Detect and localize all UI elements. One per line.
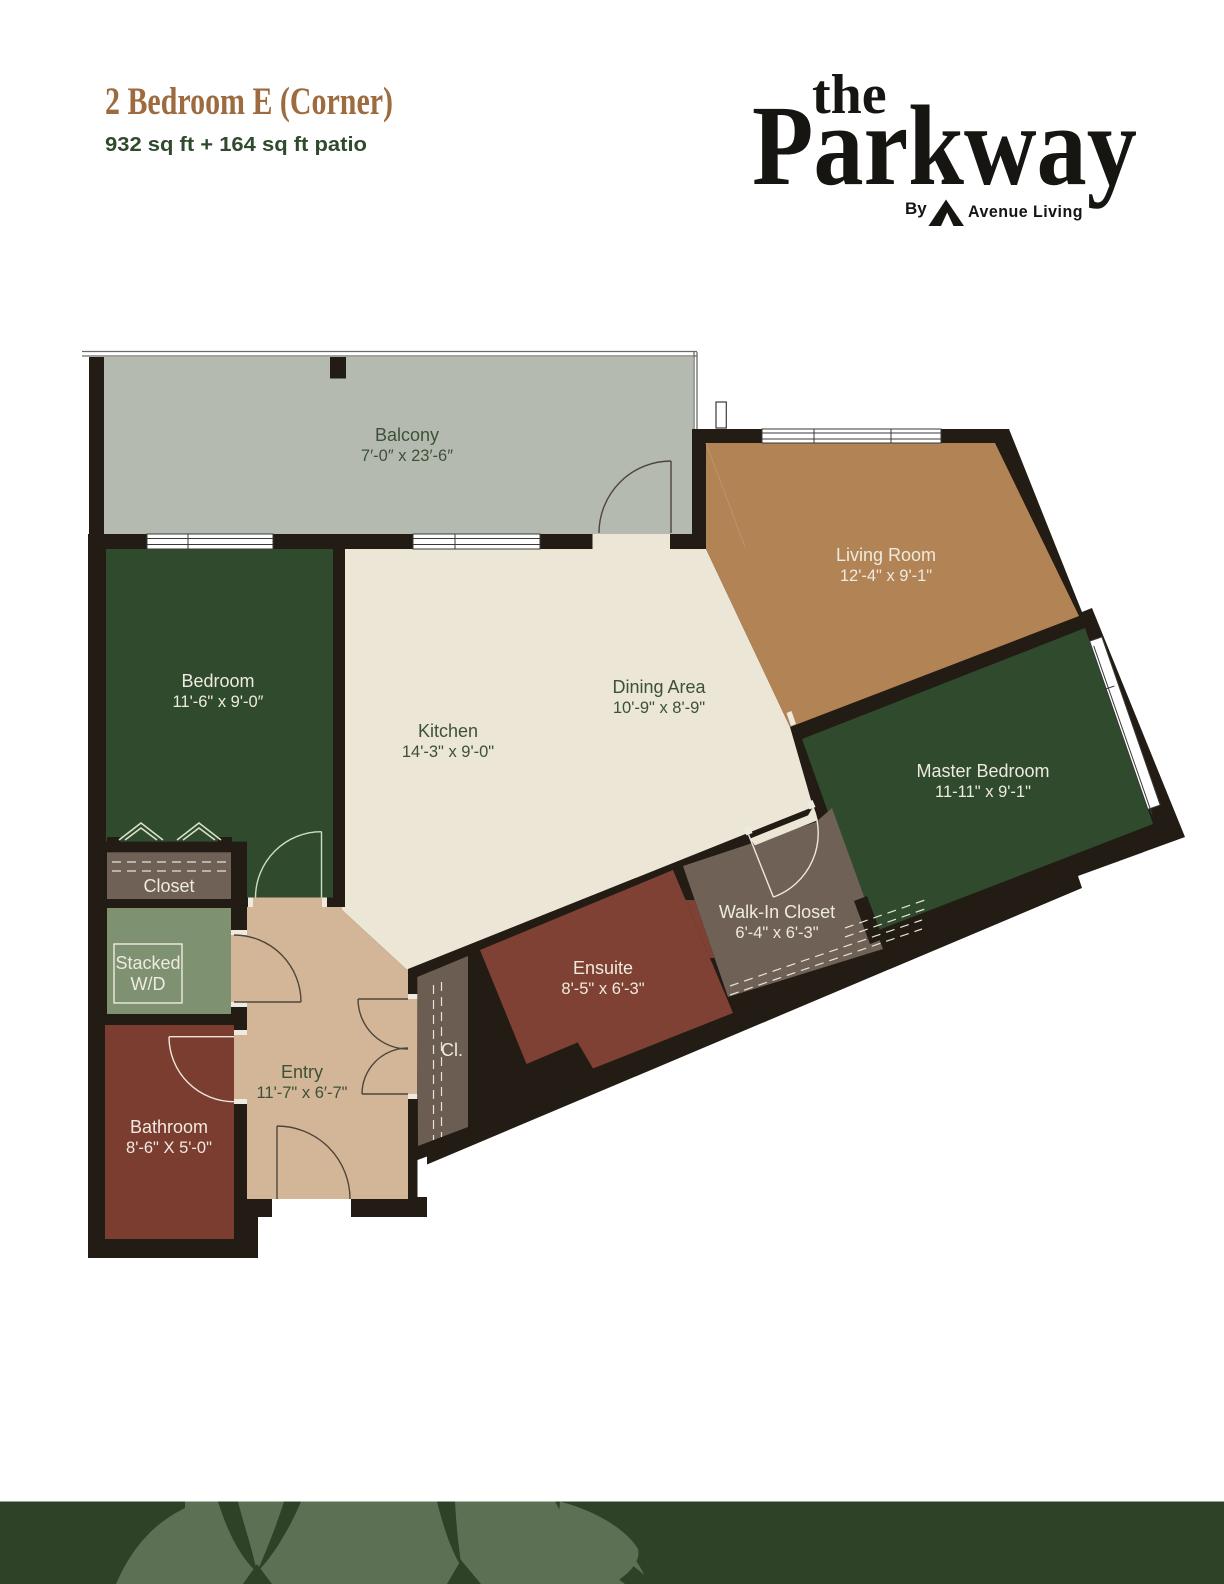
svg-text:2 Bedroom E (Corner): 2 Bedroom E (Corner) <box>105 80 393 123</box>
svg-text:932 sq ft + 164 sq ft patio: 932 sq ft + 164 sq ft patio <box>105 134 367 156</box>
svg-text:Entry: Entry <box>281 1062 323 1082</box>
svg-text:10'-9" x 8'-9": 10'-9" x 8'-9" <box>613 699 705 717</box>
svg-text:11'-7" x 6′-7": 11'-7" x 6′-7" <box>256 1084 347 1102</box>
svg-text:Bathroom: Bathroom <box>130 1117 208 1137</box>
svg-text:Walk-In Closet: Walk-In Closet <box>719 902 835 922</box>
svg-text:6'-4" x 6'-3": 6'-4" x 6'-3" <box>735 924 818 942</box>
svg-text:Avenue Living: Avenue Living <box>968 203 1083 221</box>
svg-text:Closet: Closet <box>143 876 194 896</box>
svg-text:Balcony: Balcony <box>375 425 439 445</box>
svg-text:Stacked: Stacked <box>115 953 180 973</box>
svg-text:Cl.: Cl. <box>441 1040 463 1060</box>
svg-text:Bedroom: Bedroom <box>181 671 254 691</box>
svg-text:8'-6" X 5'-0": 8'-6" X 5'-0" <box>126 1139 212 1157</box>
svg-text:11'-6" x 9'-0″: 11'-6" x 9'-0″ <box>172 693 263 711</box>
svg-text:Master Bedroom: Master Bedroom <box>916 761 1049 781</box>
svg-text:Kitchen: Kitchen <box>418 721 478 741</box>
svg-text:8'-5" x 6'-3": 8'-5" x 6'-3" <box>561 980 644 998</box>
svg-text:Parkway: Parkway <box>752 82 1137 209</box>
svg-text:By: By <box>905 199 927 218</box>
svg-text:Ensuite: Ensuite <box>573 958 633 978</box>
svg-text:Living Room: Living Room <box>836 545 936 565</box>
svg-text:W/D: W/D <box>131 974 166 994</box>
svg-text:11-11" x 9'-1": 11-11" x 9'-1" <box>935 783 1031 801</box>
svg-text:Dining Area: Dining Area <box>612 677 706 697</box>
svg-text:7′-0″ x 23′-6″: 7′-0″ x 23′-6″ <box>361 447 453 465</box>
svg-text:12'-4" x 9'-1": 12'-4" x 9'-1" <box>840 567 932 585</box>
svg-text:14'-3" x 9'-0": 14'-3" x 9'-0" <box>402 743 494 761</box>
